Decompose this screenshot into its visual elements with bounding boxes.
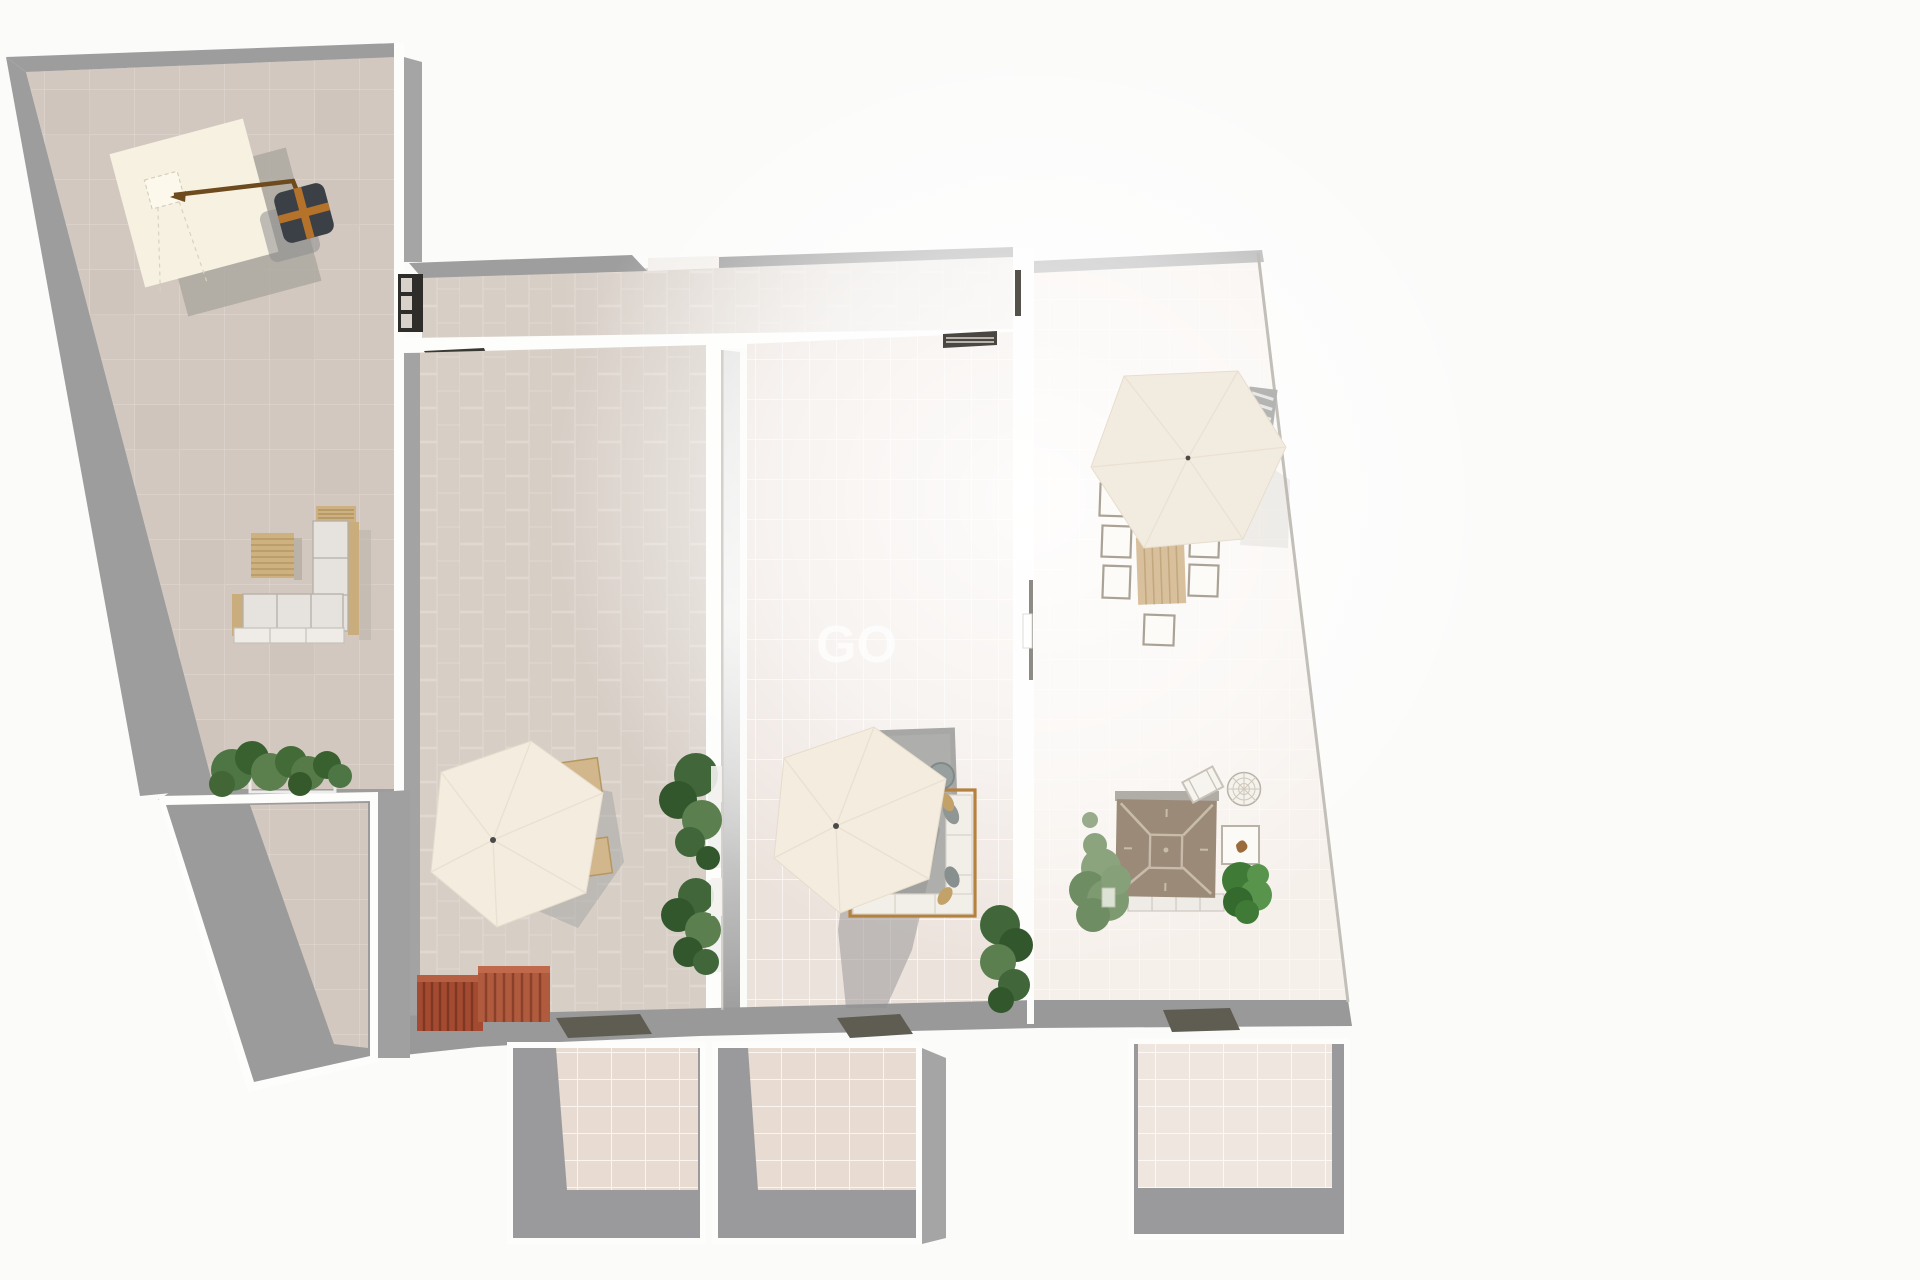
svg-text:GO: GO bbox=[816, 616, 897, 674]
